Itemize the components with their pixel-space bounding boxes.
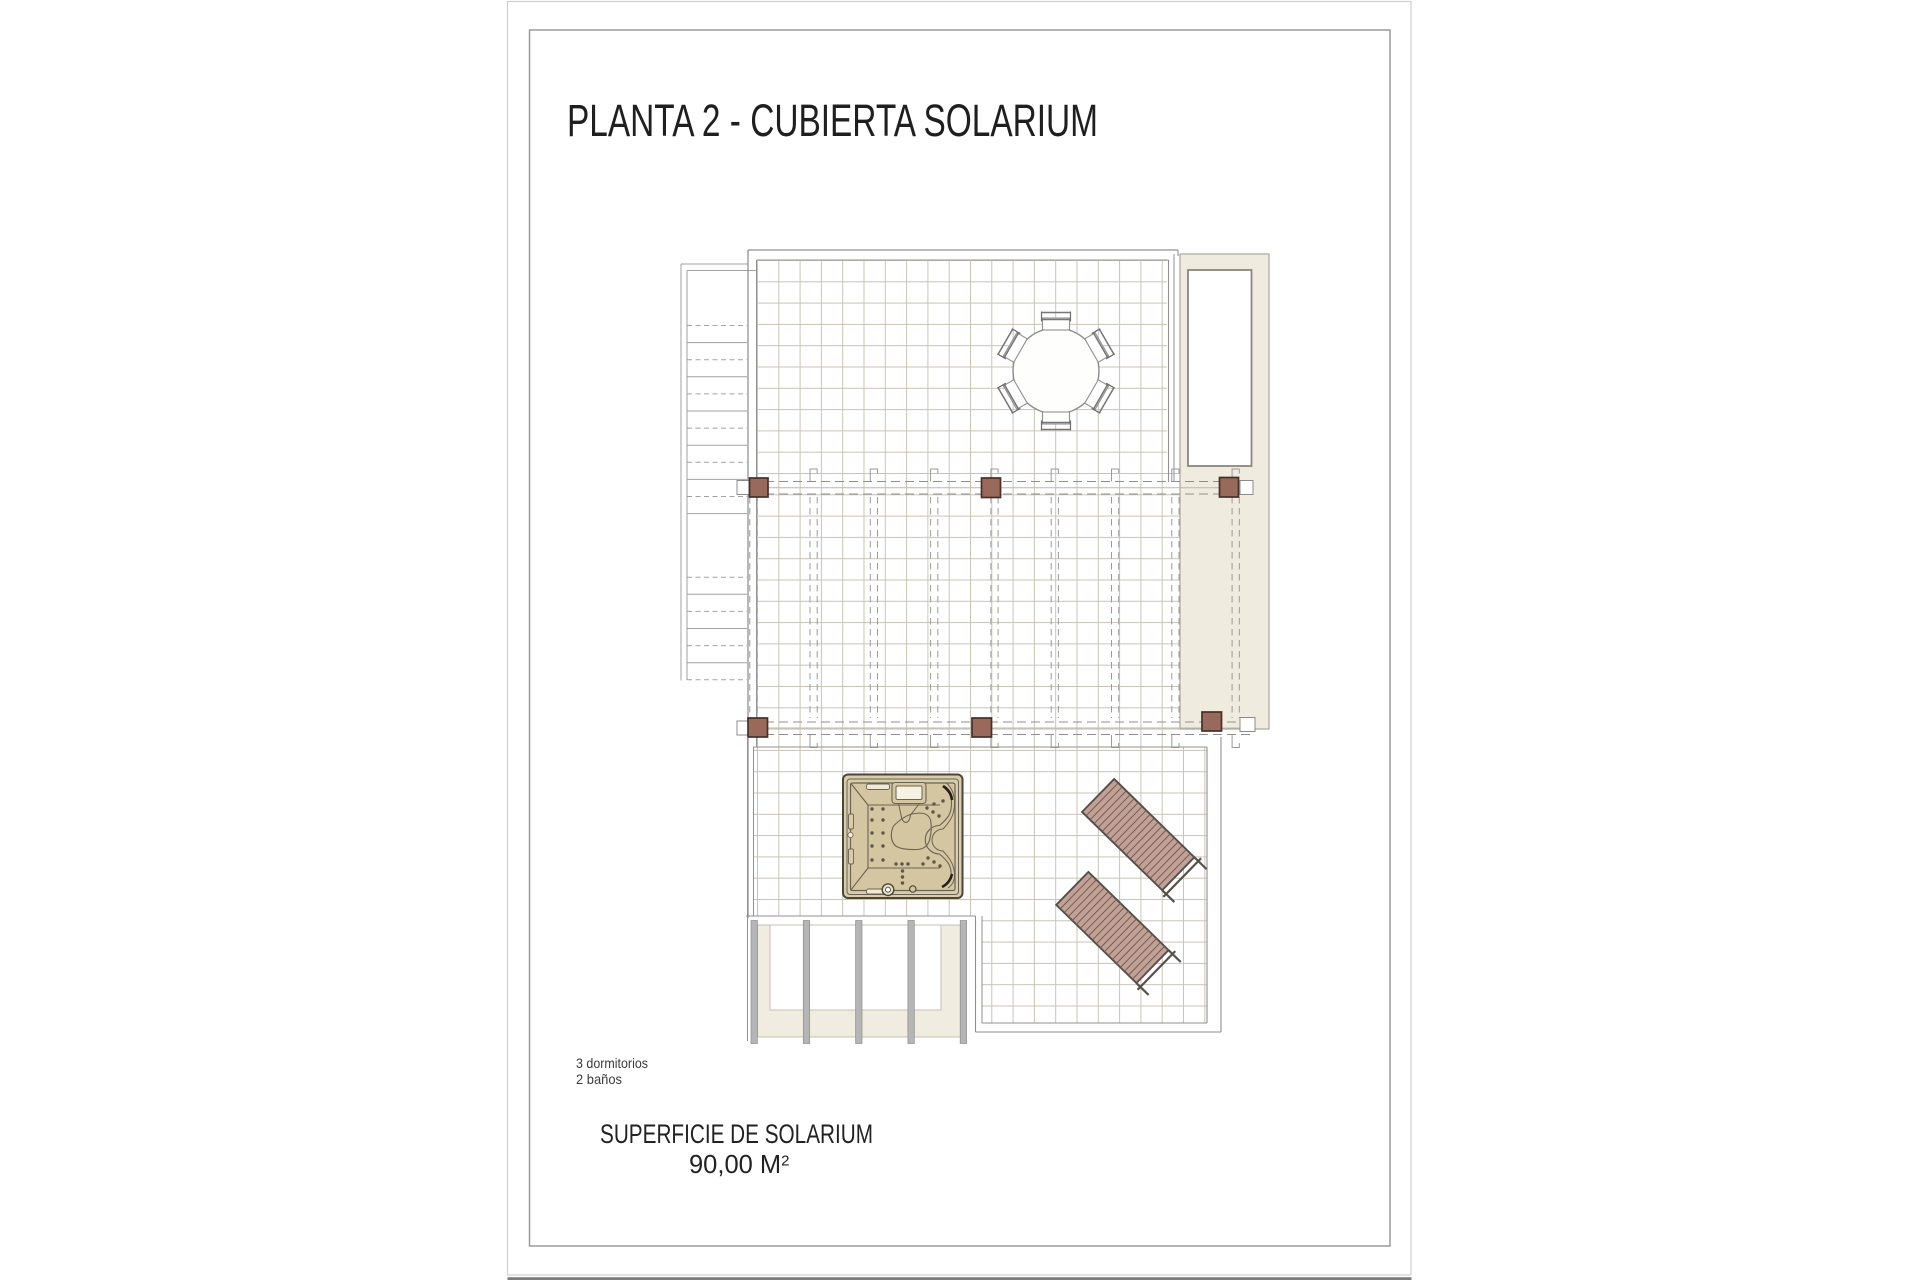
- svg-text:3 dormitorios: 3 dormitorios: [576, 1055, 648, 1071]
- svg-text:SUPERFICIE DE SOLARIUM: SUPERFICIE DE SOLARIUM: [600, 1119, 873, 1149]
- svg-text:2 baños: 2 baños: [576, 1071, 622, 1087]
- svg-text:90,00 M2: 90,00 M2: [689, 1151, 789, 1179]
- svg-text:PLANTA 2 - CUBIERTA SOLARIUM: PLANTA 2 - CUBIERTA SOLARIUM: [567, 95, 1098, 146]
